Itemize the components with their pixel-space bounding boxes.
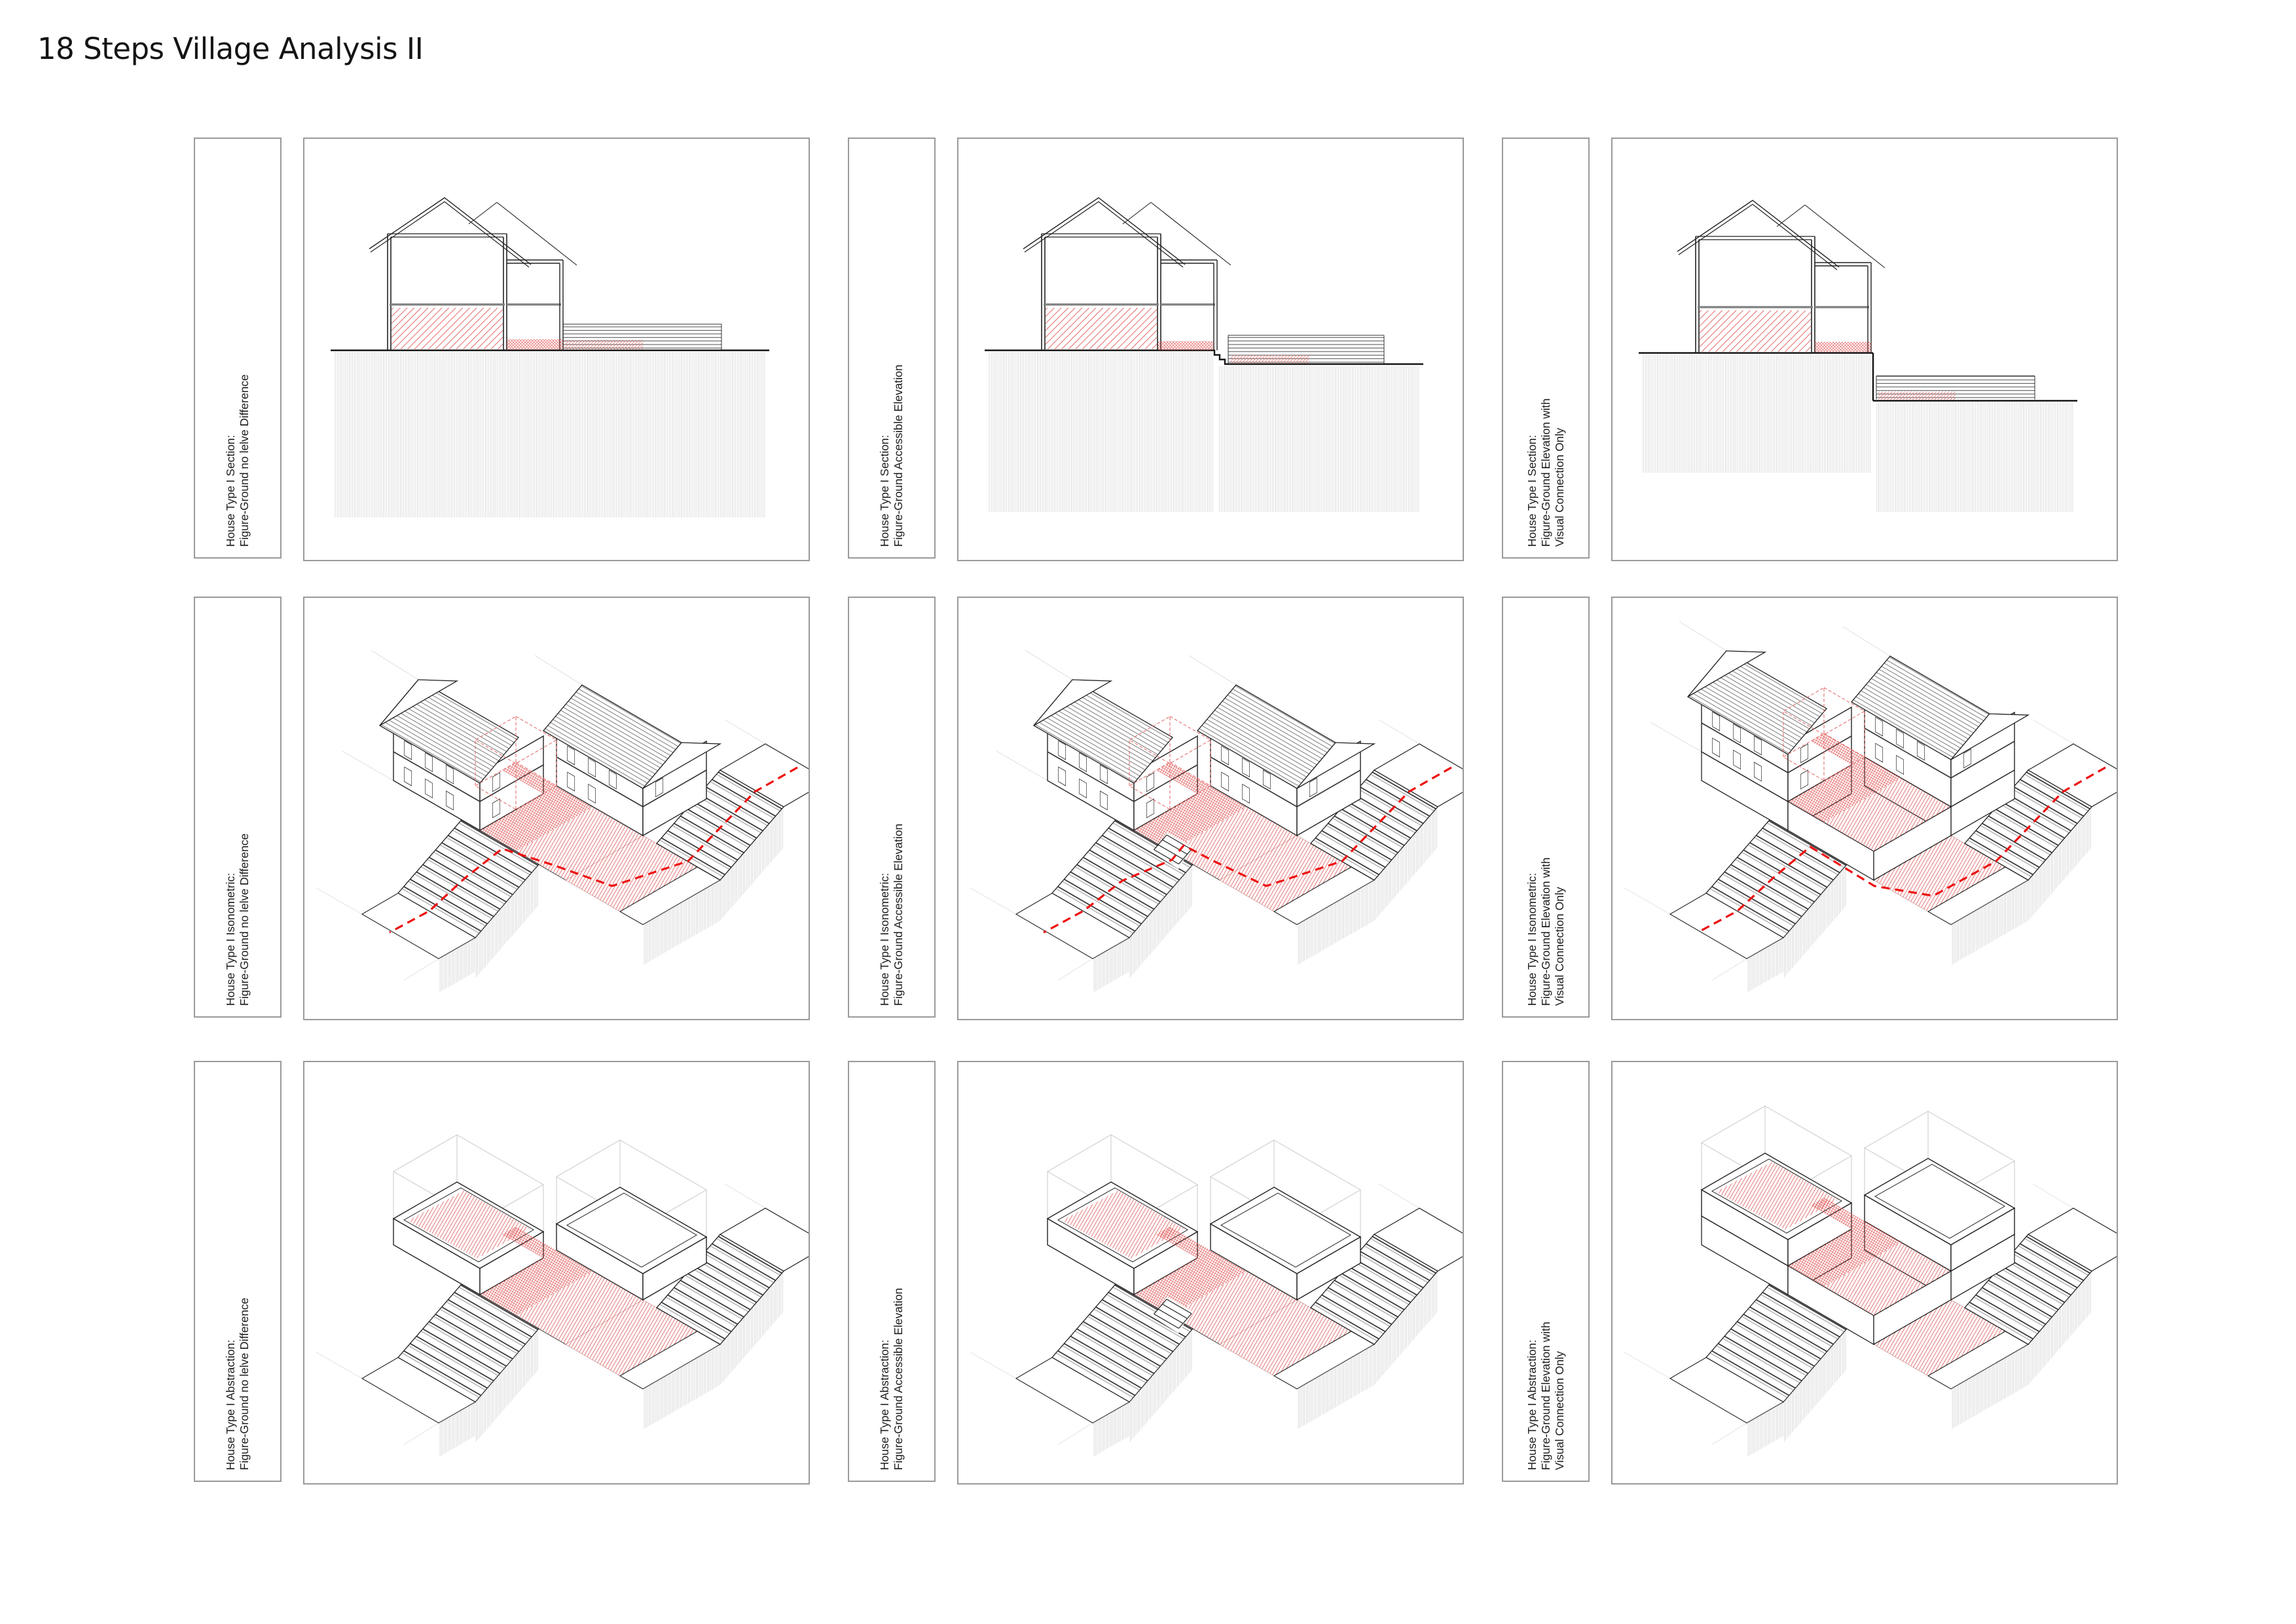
label-line: Figure-Ground Accessible Elevation <box>892 1075 905 1470</box>
section-drawing-no-level <box>304 139 809 560</box>
label-line: Figure-Ground no lelve Difference <box>238 151 251 547</box>
label-abs-no-level: House Type I Abstraction: Figure-Ground … <box>194 1061 282 1482</box>
abstraction-drawing-visual-only <box>1613 1062 2117 1483</box>
abstraction-drawing-no-level <box>304 1062 809 1483</box>
label-iso-no-level: House Type I Isonometric: Figure-Ground … <box>194 597 282 1018</box>
label-line: House Type I Section: <box>1525 151 1539 547</box>
iso-drawing-no-level <box>304 598 809 1019</box>
panel-iso-no-level <box>303 597 810 1020</box>
label-section-no-level: House Type I Section: Figure-Ground no l… <box>194 138 282 559</box>
label-line: Figure-Ground Elevation with <box>1539 151 1553 547</box>
abstraction-drawing-accessible <box>958 1062 1463 1483</box>
label-iso-accessible: House Type I Isonometric: Figure-Ground … <box>848 597 936 1018</box>
label-text: House Type I Section: Figure-Ground Elev… <box>1503 151 1588 557</box>
label-line: House Type I Isonometric: <box>878 610 892 1006</box>
label-abs-visual-only: House Type I Abstraction: Figure-Ground … <box>1502 1061 1590 1482</box>
label-text: House Type I Abstraction: Figure-Ground … <box>1503 1075 1588 1481</box>
label-line: House Type I Isonometric: <box>1525 610 1539 1006</box>
label-line: Figure-Ground Accessible Elevation <box>892 610 905 1006</box>
label-text: House Type I Abstraction: Figure-Ground … <box>195 1075 280 1481</box>
panel-abs-visual-only <box>1611 1061 2118 1485</box>
label-line: House Type I Isonometric: <box>224 610 238 1006</box>
label-line: Figure-Ground no lelve Difference <box>238 610 251 1006</box>
label-text: House Type I Section: Figure-Ground Acce… <box>849 151 934 557</box>
label-line: House Type I Section: <box>878 151 892 547</box>
label-line: House Type I Section: <box>224 151 238 547</box>
iso-drawing-visual-only <box>1613 598 2117 1019</box>
panel-abs-accessible <box>957 1061 1464 1485</box>
panel-section-visual-only <box>1611 138 2118 561</box>
panel-iso-accessible <box>957 597 1464 1020</box>
label-text: House Type I Isonometric: Figure-Ground … <box>195 610 280 1016</box>
section-drawing-visual-only <box>1613 139 2117 560</box>
label-text: House Type I Isonometric: Figure-Ground … <box>849 610 934 1016</box>
label-line: Visual Connection Only <box>1553 1075 1567 1470</box>
analysis-board: 18 Steps Village Analysis II <box>0 0 2296 1624</box>
label-iso-visual-only: House Type I Isonometric: Figure-Ground … <box>1502 597 1590 1018</box>
panel-abs-no-level <box>303 1061 810 1485</box>
label-text: House Type I Abstraction: Figure-Ground … <box>849 1075 934 1481</box>
label-line: House Type I Abstraction: <box>1525 1075 1539 1470</box>
iso-drawing-accessible <box>958 598 1463 1019</box>
label-abs-accessible: House Type I Abstraction: Figure-Ground … <box>848 1061 936 1482</box>
label-line: Figure-Ground no lelve Difference <box>238 1075 251 1470</box>
panel-section-accessible <box>957 138 1464 561</box>
label-line: Figure-Ground Accessible Elevation <box>892 151 905 547</box>
section-drawing-accessible <box>958 139 1463 560</box>
label-text: House Type I Isonometric: Figure-Ground … <box>1503 610 1588 1016</box>
label-line: House Type I Abstraction: <box>224 1075 238 1470</box>
panel-section-no-level <box>303 138 810 561</box>
label-line: House Type I Abstraction: <box>878 1075 892 1470</box>
label-section-accessible: House Type I Section: Figure-Ground Acce… <box>848 138 936 559</box>
page-title: 18 Steps Village Analysis II <box>37 31 423 66</box>
label-line: Figure-Ground Elevation with <box>1539 1075 1553 1470</box>
label-section-visual-only: House Type I Section: Figure-Ground Elev… <box>1502 138 1590 559</box>
panel-iso-visual-only <box>1611 597 2118 1020</box>
label-text: House Type I Section: Figure-Ground no l… <box>195 151 280 557</box>
label-line: Figure-Ground Elevation with <box>1539 610 1553 1006</box>
label-line: Visual Connection Only <box>1553 610 1567 1006</box>
label-line: Visual Connection Only <box>1553 151 1567 547</box>
